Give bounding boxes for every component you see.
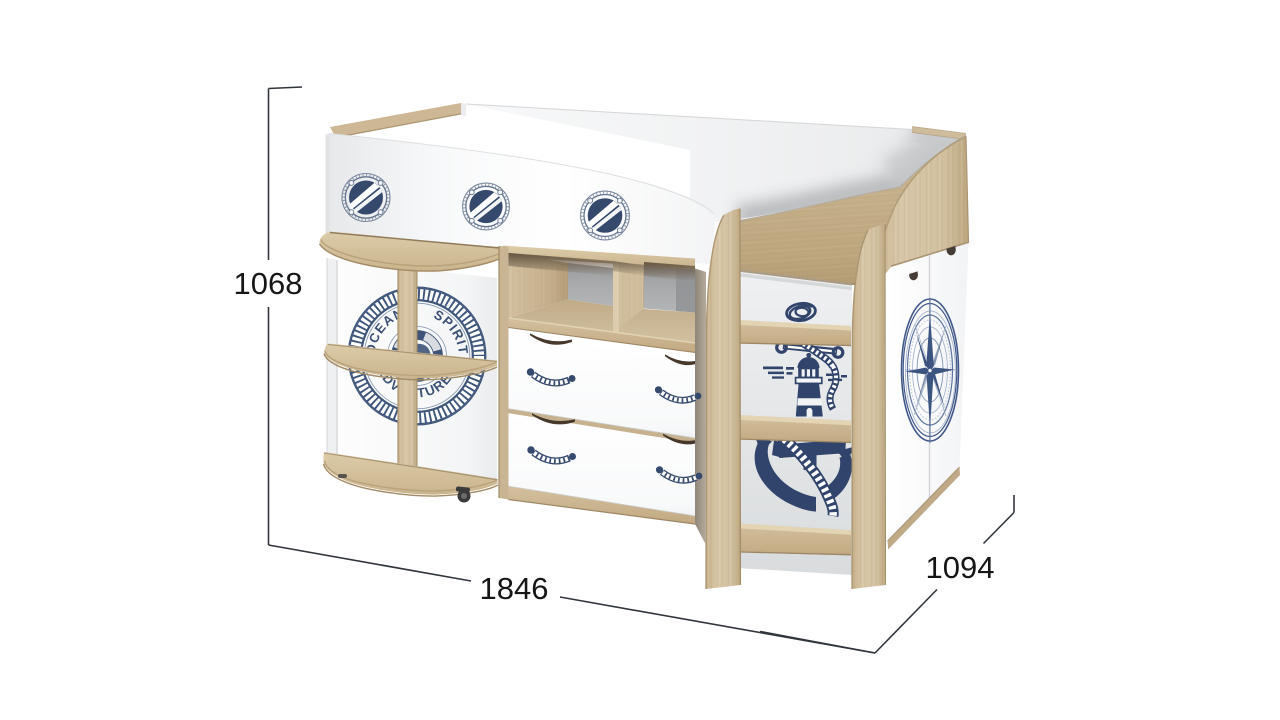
svg-text:1094: 1094: [926, 550, 995, 585]
svg-text:1068: 1068: [234, 266, 303, 301]
svg-text:1846: 1846: [480, 571, 549, 606]
